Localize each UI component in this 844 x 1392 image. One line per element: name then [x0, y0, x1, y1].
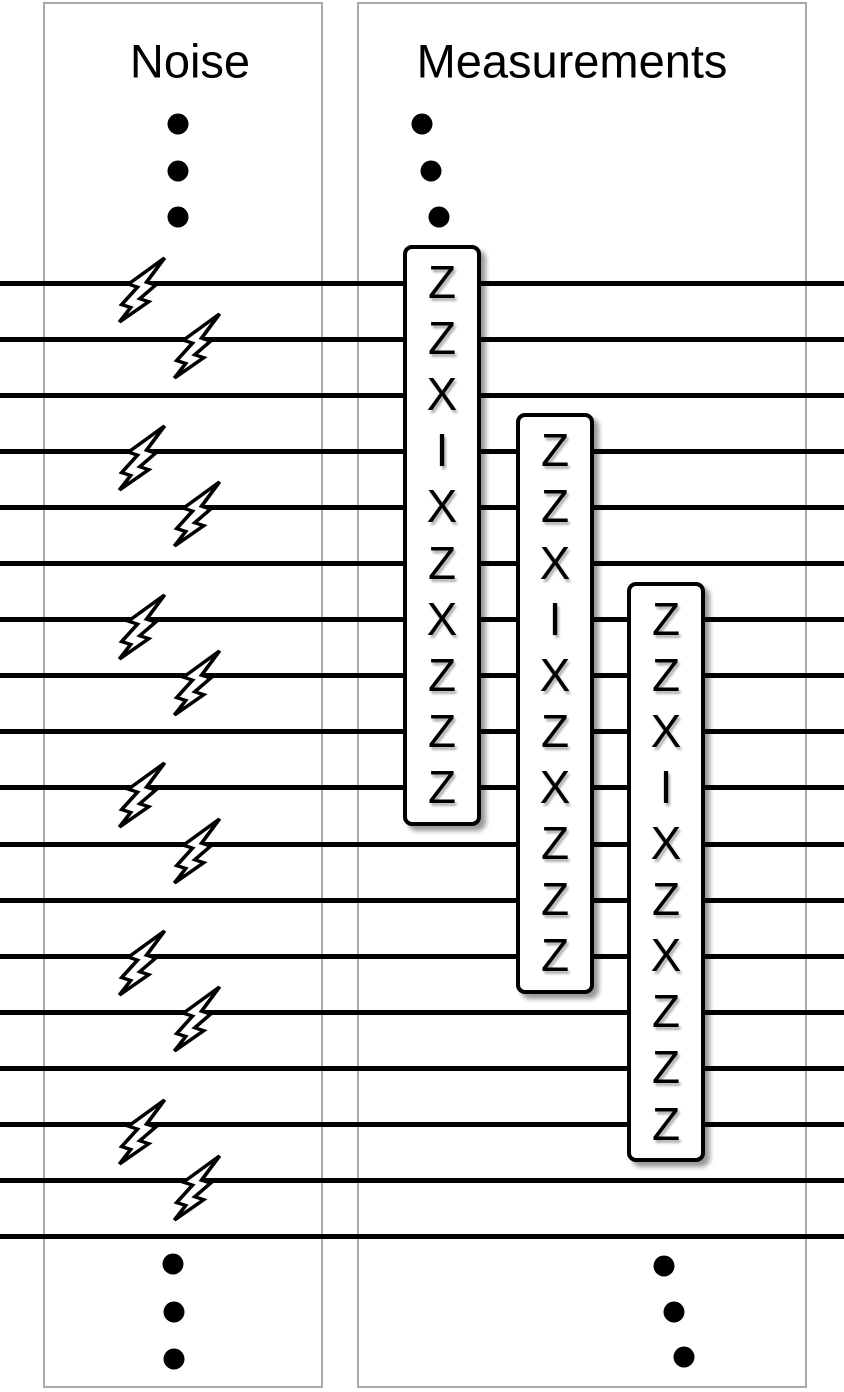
lightning-bolt-icon [171, 311, 223, 381]
pauli-letter: Z [541, 708, 569, 754]
pauli-letter: I [436, 427, 449, 473]
qubit-wire [0, 1234, 844, 1239]
ellipsis-dot [664, 1301, 685, 1322]
pauli-letter: Z [541, 427, 569, 473]
pauli-letter: Z [541, 932, 569, 978]
lightning-bolt-icon [116, 592, 168, 662]
ellipsis-dot [163, 1254, 184, 1275]
measurements-title: Measurements [417, 34, 728, 89]
circuit-diagram: Noise Measurements ZZXIXZXZZZZZXIXZXZZZZ… [0, 0, 844, 1392]
pauli-letter: Z [428, 315, 456, 361]
lightning-bolt-icon [116, 760, 168, 830]
lightning-bolt-icon [171, 1153, 223, 1223]
pauli-letter: Z [428, 259, 456, 305]
lightning-bolt-icon [116, 255, 168, 325]
pauli-letter: Z [541, 876, 569, 922]
pauli-letter: X [540, 764, 571, 810]
pauli-letter: Z [652, 596, 680, 642]
pauli-letter: Z [652, 1044, 680, 1090]
pauli-letter: Z [428, 652, 456, 698]
qubit-wire [0, 898, 844, 903]
lightning-bolt-icon [116, 1097, 168, 1167]
pauli-letter: X [540, 540, 571, 586]
pauli-letter: Z [652, 876, 680, 922]
ellipsis-dot [164, 1349, 185, 1370]
pauli-letter: X [651, 932, 682, 978]
pauli-letter: X [427, 371, 458, 417]
pauli-letter: Z [652, 652, 680, 698]
ellipsis-dot [674, 1347, 695, 1368]
ellipsis-dot [163, 1301, 184, 1322]
ellipsis-dot [412, 114, 433, 135]
lightning-bolt-icon [171, 816, 223, 886]
pauli-letter: Z [428, 708, 456, 754]
ellipsis-dot [420, 160, 441, 181]
noise-title: Noise [130, 34, 250, 89]
pauli-letter: I [549, 596, 562, 642]
lightning-bolt-icon [171, 648, 223, 718]
pauli-letter: I [660, 764, 673, 810]
pauli-letter: X [651, 708, 682, 754]
lightning-bolt-icon [116, 928, 168, 998]
lightning-bolt-icon [116, 423, 168, 493]
lightning-bolt-icon [171, 984, 223, 1054]
pauli-letter: Z [652, 1101, 680, 1147]
qubit-wire [0, 1010, 844, 1015]
qubit-wire [0, 1178, 844, 1183]
ellipsis-dot [168, 114, 189, 135]
pauli-letter: Z [541, 820, 569, 866]
ellipsis-dot [429, 207, 450, 228]
ellipsis-dot [168, 160, 189, 181]
pauli-letter: X [427, 596, 458, 642]
qubit-wire [0, 1066, 844, 1071]
pauli-letter: X [427, 483, 458, 529]
pauli-letter: X [540, 652, 571, 698]
lightning-bolt-icon [171, 479, 223, 549]
pauli-letter: Z [652, 988, 680, 1034]
pauli-letter: Z [428, 540, 456, 586]
qubit-wire [0, 842, 844, 847]
pauli-letter: Z [541, 483, 569, 529]
pauli-letter: X [651, 820, 682, 866]
ellipsis-dot [654, 1256, 675, 1277]
ellipsis-dot [168, 207, 189, 228]
pauli-letter: Z [428, 764, 456, 810]
